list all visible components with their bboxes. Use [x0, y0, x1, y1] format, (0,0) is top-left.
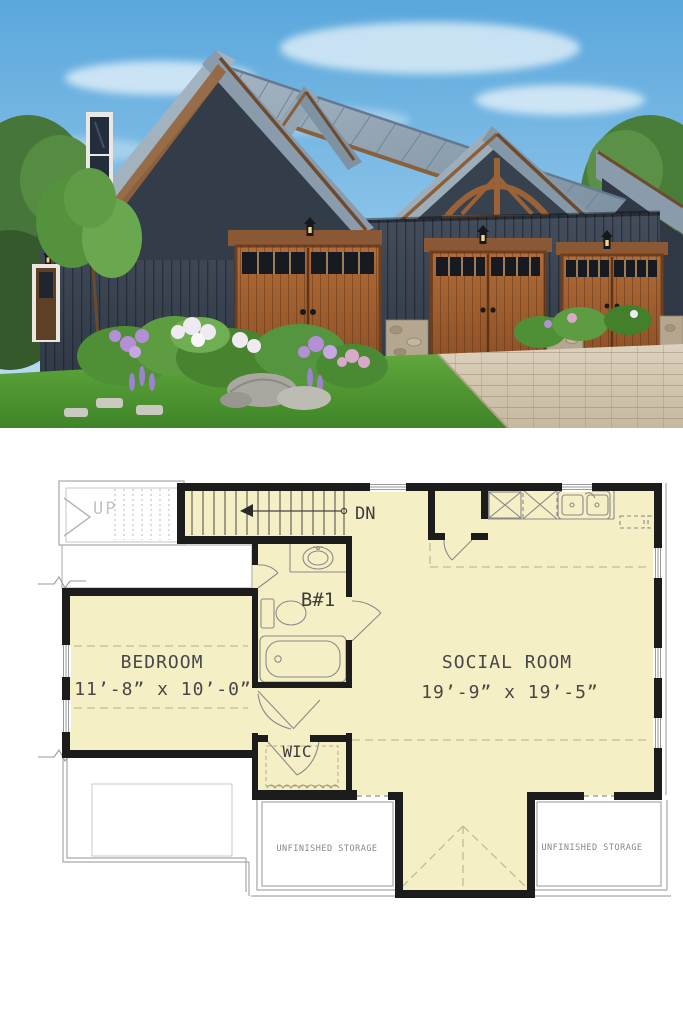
side-door: [32, 264, 60, 342]
window: [61, 700, 71, 732]
page: UP DN B#1 BEDROOM 11’-8” x 10’-0” SOCIAL…: [0, 0, 683, 1024]
house-photo: [0, 0, 683, 430]
down-label: DN: [355, 504, 375, 524]
bedroom-label: BEDROOM: [121, 652, 204, 673]
social-room-dims: 19’-9” x 19’-5”: [421, 682, 599, 703]
garage-roof-outline: [63, 758, 249, 896]
up-stair-enclosure: [59, 481, 184, 545]
window: [61, 645, 71, 677]
floor-plan: UP DN B#1 BEDROOM 11’-8” x 10’-0” SOCIAL…: [38, 481, 671, 898]
storage-left-label: UNFINISHED STORAGE: [276, 844, 377, 854]
window: [653, 548, 663, 578]
window: [653, 648, 663, 678]
bath-label: B#1: [301, 589, 335, 611]
window: [653, 718, 663, 748]
window: [370, 482, 406, 492]
window: [562, 482, 592, 492]
composite-image: UP DN B#1 BEDROOM 11’-8” x 10’-0” SOCIAL…: [0, 0, 683, 1024]
wic-label: WIC: [283, 742, 312, 761]
stairwell-void: [62, 545, 252, 588]
up-label: UP: [93, 499, 117, 519]
social-room-label: SOCIAL ROOM: [442, 652, 572, 673]
storage-right-label: UNFINISHED STORAGE: [541, 843, 642, 853]
up-arrow-icon: [64, 498, 90, 536]
bedroom-dims: 11’-8” x 10’-0”: [74, 679, 252, 700]
